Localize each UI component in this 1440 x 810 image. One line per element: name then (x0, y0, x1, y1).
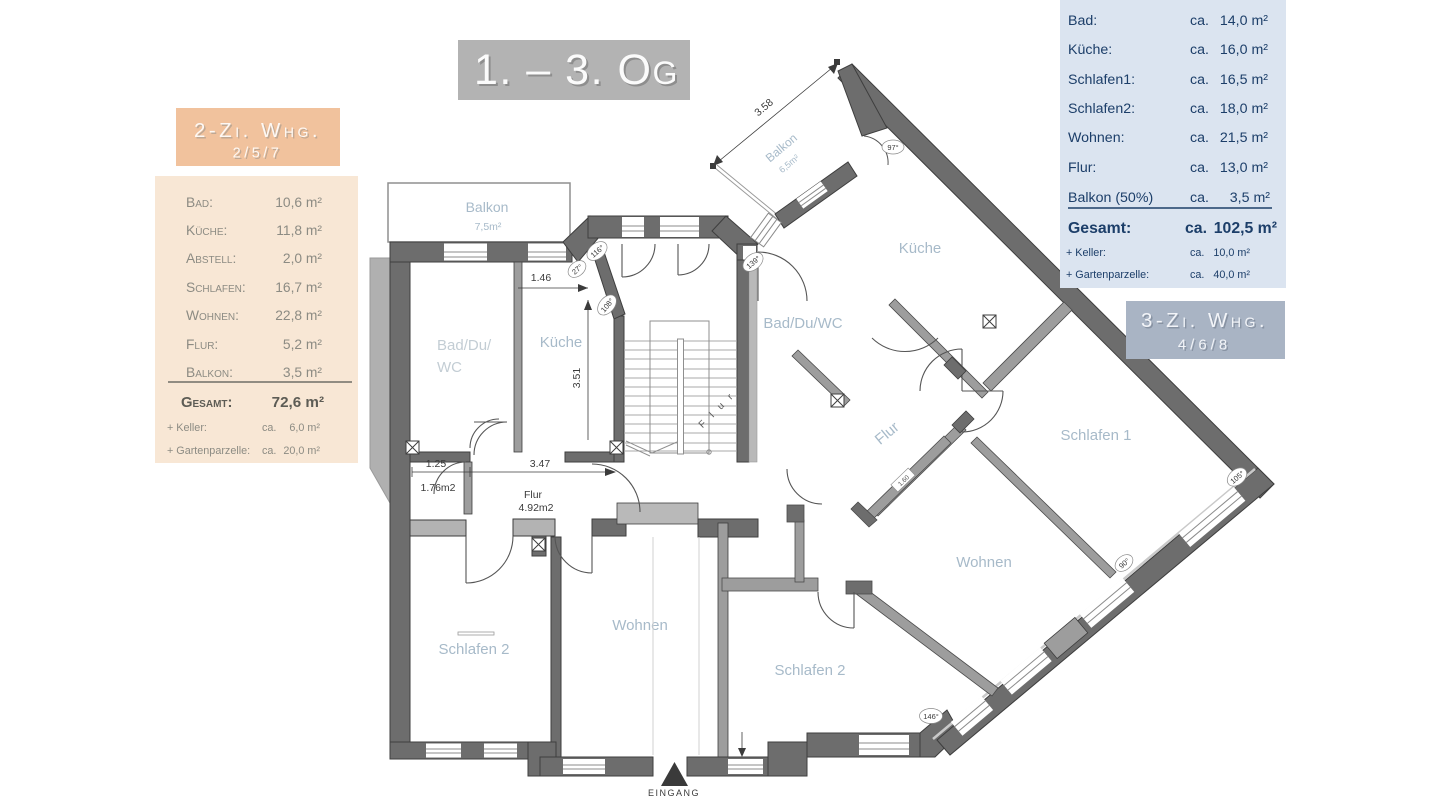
svg-text:Küche:: Küche: (1068, 42, 1112, 58)
svg-text:ca.: ca. (1190, 101, 1209, 117)
svg-text:16,0 m²: 16,0 m² (1220, 42, 1268, 58)
svg-text:ca.: ca. (1190, 130, 1209, 146)
svg-text:+ Gartenparzelle:: + Gartenparzelle: (167, 445, 250, 457)
svg-text:Bad:: Bad: (186, 195, 213, 210)
svg-text:14,0 m²: 14,0 m² (1220, 13, 1268, 29)
svg-text:3-Zi. Whg.: 3-Zi. Whg. (1141, 309, 1268, 332)
svg-text:ca.: ca. (1190, 269, 1204, 281)
svg-text:Bad:: Bad: (1068, 13, 1097, 29)
svg-text:7,5m²: 7,5m² (475, 221, 502, 233)
svg-text:40,0 m²: 40,0 m² (1213, 269, 1250, 281)
svg-text:ca.: ca. (1190, 190, 1209, 206)
svg-text:Abstell:: Abstell: (186, 251, 236, 266)
svg-text:Wohnen:: Wohnen: (1068, 130, 1125, 146)
svg-text:+ Keller:: + Keller: (1066, 247, 1106, 259)
svg-text:Küche: Küche (899, 240, 942, 257)
svg-text:3.47: 3.47 (530, 458, 551, 470)
svg-text:4.92m2: 4.92m2 (518, 502, 553, 514)
svg-text:Wohnen: Wohnen (956, 554, 1012, 571)
svg-text:ca.: ca. (1190, 72, 1209, 88)
svg-text:2/5/7: 2/5/7 (233, 146, 283, 162)
svg-text:ca.: ca. (262, 422, 276, 434)
svg-text:Schlafen 2: Schlafen 2 (775, 662, 846, 679)
svg-text:1.46: 1.46 (531, 272, 552, 284)
svg-text:ca.: ca. (1190, 13, 1209, 29)
svg-text:3.51: 3.51 (571, 368, 583, 389)
svg-text:3,5 m²: 3,5 m² (1230, 190, 1270, 206)
svg-text:Schlafen1:: Schlafen1: (1068, 72, 1135, 88)
svg-text:ca.: ca. (262, 445, 276, 457)
svg-text:6,0 m²: 6,0 m² (289, 422, 320, 434)
svg-text:16,5 m²: 16,5 m² (1220, 72, 1268, 88)
svg-text:Bad/Du/WC: Bad/Du/WC (763, 315, 842, 332)
svg-text:3,5 m²: 3,5 m² (283, 365, 323, 380)
svg-text:EINGANG: EINGANG (648, 788, 700, 798)
svg-text:WC: WC (437, 359, 462, 376)
svg-text:ca.: ca. (1185, 220, 1207, 237)
svg-text:2,0 m²: 2,0 m² (283, 251, 323, 266)
svg-text:Balkon:: Balkon: (186, 365, 233, 380)
svg-text:10,0 m²: 10,0 m² (1213, 247, 1250, 259)
svg-text:4/6/8: 4/6/8 (1178, 337, 1231, 354)
svg-text:Schlafen 2: Schlafen 2 (439, 641, 510, 658)
svg-text:1.76m2: 1.76m2 (420, 482, 455, 494)
svg-text:13,0 m²: 13,0 m² (1220, 160, 1268, 176)
svg-text:16,7 m²: 16,7 m² (275, 280, 322, 295)
svg-text:1. – 3. OG: 1. – 3. OG (474, 46, 679, 94)
svg-text:5,2 m²: 5,2 m² (283, 337, 323, 352)
svg-text:Gesamt:: Gesamt: (181, 395, 232, 411)
svg-text:Balkon: Balkon (466, 199, 509, 215)
svg-text:Flur:: Flur: (186, 337, 218, 352)
svg-text:Küche: Küche (540, 334, 583, 351)
svg-text:102,5 m²: 102,5 m² (1214, 220, 1277, 237)
svg-text:Schlafen:: Schlafen: (186, 280, 246, 295)
svg-text:18,0 m²: 18,0 m² (1220, 101, 1268, 117)
svg-text:1.25: 1.25 (426, 458, 447, 470)
svg-text:10,6 m²: 10,6 m² (275, 195, 322, 210)
svg-text:Schlafen2:: Schlafen2: (1068, 101, 1135, 117)
svg-text:Flur: Flur (524, 489, 543, 501)
svg-text:Küche:: Küche: (186, 223, 227, 238)
svg-text:Balkon (50%): Balkon (50%) (1068, 190, 1153, 206)
svg-text:ca.: ca. (1190, 42, 1209, 58)
svg-text:22,8 m²: 22,8 m² (275, 308, 322, 323)
svg-text:20,0 m²: 20,0 m² (283, 445, 320, 457)
svg-text:ca.: ca. (1190, 160, 1209, 176)
svg-text:146°: 146° (923, 712, 939, 721)
svg-text:2-Zi. Whg.: 2-Zi. Whg. (194, 119, 321, 142)
svg-text:Flur:: Flur: (1068, 160, 1096, 176)
svg-text:11,8 m²: 11,8 m² (276, 223, 322, 238)
svg-text:97°: 97° (887, 143, 898, 152)
svg-text:Wohnen:: Wohnen: (186, 308, 239, 323)
svg-text:+ Gartenparzelle:: + Gartenparzelle: (1066, 269, 1149, 281)
svg-text:+ Keller:: + Keller: (167, 422, 207, 434)
svg-text:72,6 m²: 72,6 m² (272, 394, 324, 411)
svg-text:Schlafen 1: Schlafen 1 (1061, 427, 1132, 444)
svg-text:Gesamt:: Gesamt: (1068, 220, 1131, 237)
svg-text:ca.: ca. (1190, 247, 1204, 259)
svg-text:Bad/Du/: Bad/Du/ (437, 337, 492, 354)
svg-text:21,5 m²: 21,5 m² (1220, 130, 1268, 146)
svg-text:Wohnen: Wohnen (612, 617, 668, 634)
